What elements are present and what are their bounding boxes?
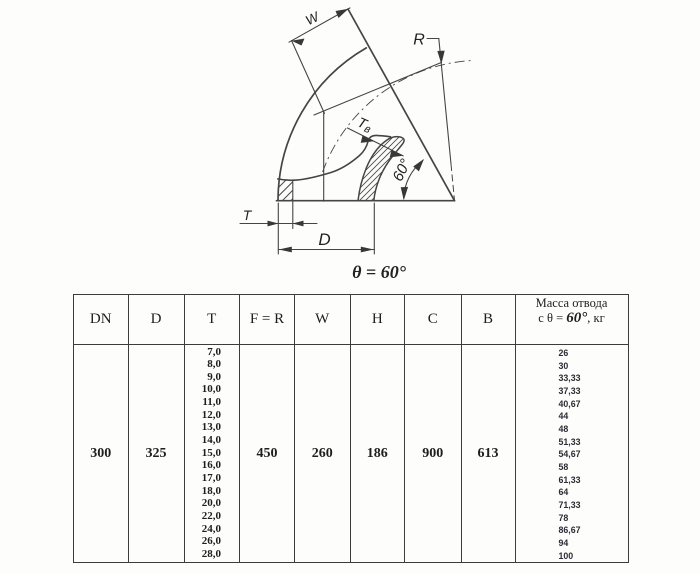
svg-text:Т: Т [243,207,253,223]
svg-text:R: R [413,32,425,49]
svg-text:60°: 60° [389,156,414,184]
svg-text:D: D [318,230,330,249]
svg-text:θ = 60°: θ = 60° [352,262,407,282]
